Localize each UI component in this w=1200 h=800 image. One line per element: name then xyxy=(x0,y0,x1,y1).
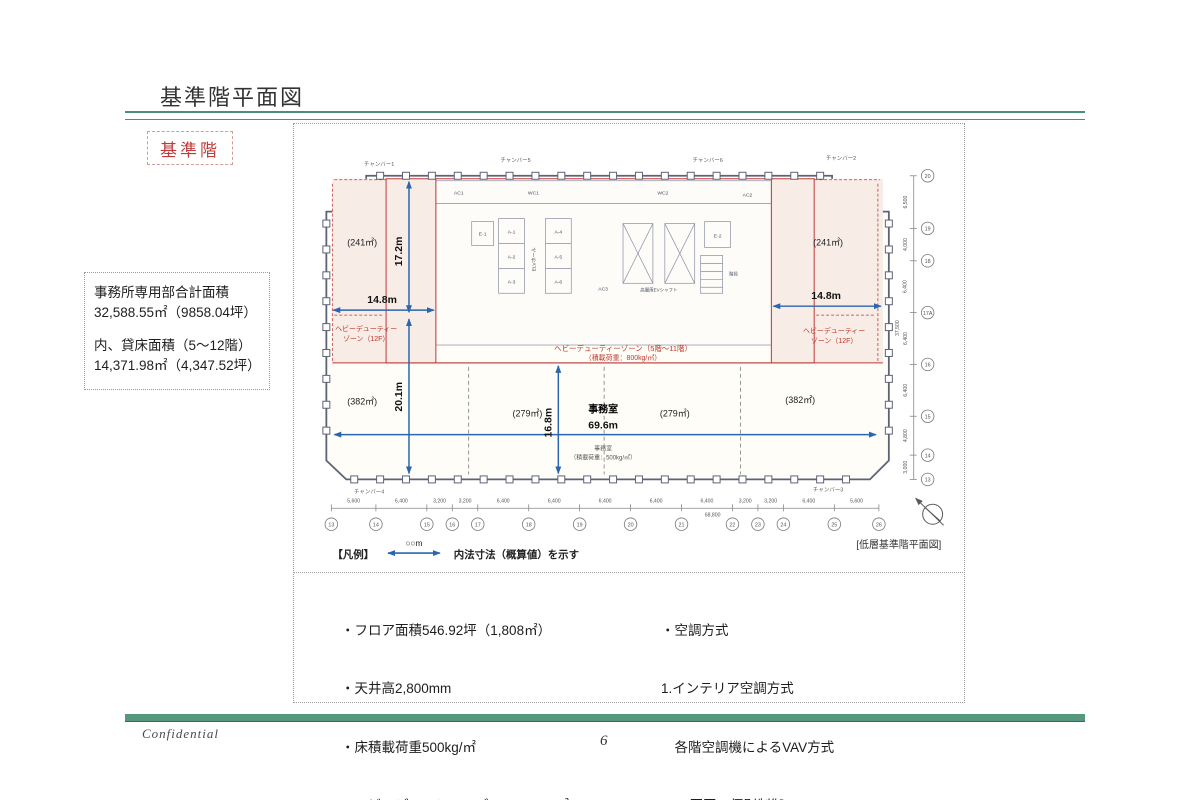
column-square xyxy=(323,375,330,382)
room-label-e2: E-2 xyxy=(714,233,722,239)
grid-span-label: 6,400 xyxy=(903,280,909,293)
room-label-a4: A-4 xyxy=(554,230,562,236)
confidential-label: Confidential xyxy=(142,726,219,742)
column-square xyxy=(323,324,330,331)
column-square xyxy=(765,476,772,483)
column-square xyxy=(428,476,435,483)
grid-total-label: 37,500 xyxy=(895,320,901,336)
column-square xyxy=(739,172,746,179)
area-label-279-left: (279㎡) xyxy=(513,409,543,419)
column-square xyxy=(506,476,513,483)
column-square xyxy=(532,172,539,179)
hd-zone-511-line1: ヘビーデューティーゾーン（5階～11階） xyxy=(554,343,692,353)
grid-span-label: 6,400 xyxy=(650,498,663,504)
dim-label-17-2: 17.2m xyxy=(394,237,405,267)
room-label-wc2: WC2 xyxy=(657,191,668,197)
column-square xyxy=(765,172,772,179)
chamber-label-1: チャンバー1 xyxy=(364,161,394,168)
dim-label-20-1: 20.1m xyxy=(394,382,405,412)
floor-tag-badge: 基準階 xyxy=(147,131,233,165)
column-square xyxy=(323,349,330,356)
grid-bubble-label: 23 xyxy=(755,522,761,528)
area-summary-line: 14,371.98㎡（4,347.52坪） xyxy=(94,356,260,376)
grid-span-label: 6,400 xyxy=(395,498,408,504)
room-label-ac3: AC3 xyxy=(598,286,608,292)
legend-label: 【凡例】 xyxy=(332,548,374,561)
legend-arrow-text: ○○m xyxy=(405,538,422,548)
room-label-e1: E-1 xyxy=(479,232,487,238)
area-label-382-right: (382㎡) xyxy=(785,395,815,405)
dim-label-14-8-right: 14.8m xyxy=(811,291,841,302)
column-square xyxy=(687,172,694,179)
grid-span-label: 6,500 xyxy=(903,196,909,209)
column-square xyxy=(713,172,720,179)
column-square xyxy=(323,246,330,253)
column-square xyxy=(323,220,330,227)
specs-panel: ・フロア面積546.92坪（1,808㎡） ・天井高2,800mm ・床積載荷重… xyxy=(293,572,965,703)
room-label-stairs: 階段 xyxy=(729,270,738,277)
area-summary-line: 32,588.55㎡（9858.04坪） xyxy=(94,303,260,323)
footer-divider xyxy=(125,714,1085,722)
chamber-label-5: チャンバー5 xyxy=(500,157,530,164)
title-divider xyxy=(125,111,1085,120)
grid-span-label: 3,200 xyxy=(433,498,446,504)
area-label-279-right: (279㎡) xyxy=(660,409,690,419)
grid-span-label: 3,200 xyxy=(764,498,777,504)
column-square xyxy=(323,298,330,305)
column-square xyxy=(377,172,384,179)
grid-span-label: 6,400 xyxy=(497,498,510,504)
hd-zone-12f-left-line1: ヘビーデューティー xyxy=(335,324,397,333)
column-square xyxy=(454,172,461,179)
area-label-382-left: (382㎡) xyxy=(347,397,377,407)
heavy-duty-zone-right xyxy=(771,179,883,363)
grid-bubble-label: 13 xyxy=(328,522,334,528)
column-square xyxy=(323,401,330,408)
column-square xyxy=(428,172,435,179)
room-label-elv-hall: ELVホール xyxy=(531,247,537,271)
room-label-ac1: AC1 xyxy=(454,191,464,197)
column-square xyxy=(885,272,892,279)
grid-bubble-label: 16 xyxy=(925,363,931,369)
column-square xyxy=(885,324,892,331)
grid-bubble-label: 16 xyxy=(449,522,455,528)
grid-span-label: 6,400 xyxy=(802,498,815,504)
grid-bubble-label: 13 xyxy=(925,478,931,484)
column-square xyxy=(635,172,642,179)
grid-bubble-label: 17 xyxy=(475,522,481,528)
dim-label-16-8: 16.8m xyxy=(543,408,554,438)
floor-tag-label: 基準階 xyxy=(160,136,220,161)
room-label-a3: A-3 xyxy=(508,279,516,285)
office-small-label: 事務室 xyxy=(594,445,612,453)
spec-item: ・天井高2,800mm xyxy=(341,679,609,698)
plan-legend: 【凡例】 ○○m 内法寸法（概算値）を示す xyxy=(332,538,579,561)
dim-label-14-8-left: 14.8m xyxy=(367,295,397,306)
column-square xyxy=(661,172,668,179)
room-label-a5: A-5 xyxy=(554,254,562,260)
column-square xyxy=(480,476,487,483)
column-square xyxy=(323,272,330,279)
column-square xyxy=(558,172,565,179)
room-label-a1: A-1 xyxy=(508,230,516,236)
grid-bubble-label: 20 xyxy=(628,522,634,528)
grid-bubble-label: 15 xyxy=(424,522,430,528)
page-number: 6 xyxy=(600,733,608,750)
column-square xyxy=(687,476,694,483)
hd-zone-12f-right-line1: ヘビーデューティー xyxy=(803,326,865,335)
grid-span-label: 3,200 xyxy=(739,498,752,504)
grid-span-label: 3,000 xyxy=(903,461,909,474)
column-square xyxy=(713,476,720,483)
grid-bubble-label: 19 xyxy=(925,227,931,233)
hd-zone-12f-right-line2: ゾーン（12F） xyxy=(811,337,857,345)
plan-caption: [低層基準階平面図] xyxy=(856,538,941,551)
area-summary-line: 事務所専用部合計面積 xyxy=(94,283,260,303)
area-label-241-left: (241㎡) xyxy=(347,237,377,247)
column-square xyxy=(584,172,591,179)
grid-bubble-label: 26 xyxy=(876,522,882,528)
grid-span-label: 6,400 xyxy=(903,384,909,397)
floor-plan-drawing: AC1 WC1 WC2 AC2 E-1 A-1 A-2 A-3 A-4 A-5 … xyxy=(294,124,964,572)
column-square xyxy=(885,349,892,356)
grid-bubble-label: 19 xyxy=(577,522,583,528)
spacer xyxy=(94,322,260,336)
grid-bubble-label: 17A xyxy=(923,311,933,317)
column-square xyxy=(323,427,330,434)
floor-plan-panel: AC1 WC1 WC2 AC2 E-1 A-1 A-2 A-3 A-4 A-5 … xyxy=(293,123,965,573)
column-square xyxy=(532,476,539,483)
column-square xyxy=(885,246,892,253)
chamber-label-6: チャンバー6 xyxy=(692,157,722,164)
room-label-shaft: 高層用EVシャフト xyxy=(640,286,677,293)
grid-bubble-label: 18 xyxy=(526,522,532,528)
grid-span-label: 5,600 xyxy=(347,498,360,504)
column-square xyxy=(817,172,824,179)
column-square xyxy=(506,172,513,179)
column-square xyxy=(885,220,892,227)
grid-bubble-label: 15 xyxy=(925,414,931,420)
spec-item: 26区画の個別制御 xyxy=(661,796,877,800)
area-summary-line: 内、貸床面積（5～12階） xyxy=(94,336,260,356)
column-square xyxy=(885,298,892,305)
column-square xyxy=(351,476,358,483)
column-square xyxy=(843,476,850,483)
spec-item: ・ヘビーデューティーゾーン800kg/㎡ xyxy=(341,796,609,800)
specs-right-column: ・空調方式 1.インテリア空調方式 各階空調機によるVAV方式 26区画の個別制… xyxy=(661,582,877,800)
room-label-ac2: AC2 xyxy=(743,193,753,199)
spec-item: ・空調方式 xyxy=(661,621,877,640)
grid-bubble-label: 18 xyxy=(925,259,931,265)
column-square xyxy=(610,172,617,179)
specs-left-column: ・フロア面積546.92坪（1,808㎡） ・天井高2,800mm ・床積載荷重… xyxy=(341,582,609,800)
column-square xyxy=(791,476,798,483)
hd-zone-511-line2: （積載荷重：800kg/㎡） xyxy=(585,353,662,362)
chamber-label-4: チャンバー4 xyxy=(354,488,384,495)
room-label-wc1: WC1 xyxy=(528,191,539,197)
grid-bubble-label: 24 xyxy=(780,522,786,528)
page-title: 基準階平面図 xyxy=(160,80,304,112)
grid-axis-right: 6,5004,0006,4006,4006,4004,8003,00037,50… xyxy=(895,169,934,485)
grid-span-label: 6,400 xyxy=(548,498,561,504)
column-square xyxy=(377,476,384,483)
grid-span-label: 6,400 xyxy=(701,498,714,504)
office-load-label: （積載荷重：500kg/㎡） xyxy=(570,454,636,462)
grid-bubble-label: 22 xyxy=(729,522,735,528)
spec-item: 1.インテリア空調方式 xyxy=(661,679,877,698)
column-square xyxy=(454,476,461,483)
column-square xyxy=(558,476,565,483)
area-summary-box: 事務所専用部合計面積 32,588.55㎡（9858.04坪） 内、貸床面積（5… xyxy=(84,272,270,390)
room-label-a2: A-2 xyxy=(508,254,516,260)
grid-axis-bottom: 5,6006,4003,2003,2006,4006,4006,4006,400… xyxy=(325,498,885,530)
hd-zone-12f-left-line2: ゾーン（12F） xyxy=(343,335,389,343)
grid-bubble-label: 21 xyxy=(679,522,685,528)
column-square xyxy=(739,476,746,483)
grid-total-label: 68,800 xyxy=(705,513,721,519)
dim-label-69-6: 69.6m xyxy=(588,421,618,432)
column-square xyxy=(635,476,642,483)
column-square xyxy=(584,476,591,483)
column-square xyxy=(885,401,892,408)
column-square xyxy=(610,476,617,483)
document-page: 基準階平面図 基準階 事務所専用部合計面積 32,588.55㎡（9858.04… xyxy=(0,0,1200,800)
office-label: 事務室 xyxy=(588,403,618,416)
grid-span-label: 4,800 xyxy=(903,429,909,442)
grid-bubble-label: 14 xyxy=(925,453,931,459)
spec-item: 各階空調機によるVAV方式 xyxy=(661,738,877,757)
north-arrow-icon xyxy=(916,498,944,525)
grid-span-label: 3,200 xyxy=(459,498,472,504)
legend-description: 内法寸法（概算値）を示す xyxy=(454,548,579,561)
grid-span-label: 6,400 xyxy=(903,332,909,345)
chamber-label-2: チャンバー2 xyxy=(826,155,856,162)
grid-span-label: 4,000 xyxy=(903,238,909,251)
column-square xyxy=(480,172,487,179)
chamber-label-3: チャンバー3 xyxy=(813,486,843,493)
column-square xyxy=(403,172,410,179)
grid-bubble-label: 14 xyxy=(373,522,379,528)
grid-bubble-label: 20 xyxy=(925,174,931,180)
column-square xyxy=(817,476,824,483)
column-square xyxy=(403,476,410,483)
spec-item: ・床積載荷重500kg/㎡ xyxy=(341,738,609,757)
grid-span-label: 6,400 xyxy=(599,498,612,504)
area-label-241-right: (241㎡) xyxy=(813,237,843,247)
room-label-a6: A-6 xyxy=(554,279,562,285)
spec-item: ・フロア面積546.92坪（1,808㎡） xyxy=(341,621,609,640)
grid-span-label: 5,600 xyxy=(850,498,863,504)
column-square xyxy=(885,427,892,434)
grid-bubble-label: 25 xyxy=(831,522,837,528)
core-block xyxy=(436,181,772,345)
column-square xyxy=(791,172,798,179)
column-square xyxy=(661,476,668,483)
column-square xyxy=(885,375,892,382)
